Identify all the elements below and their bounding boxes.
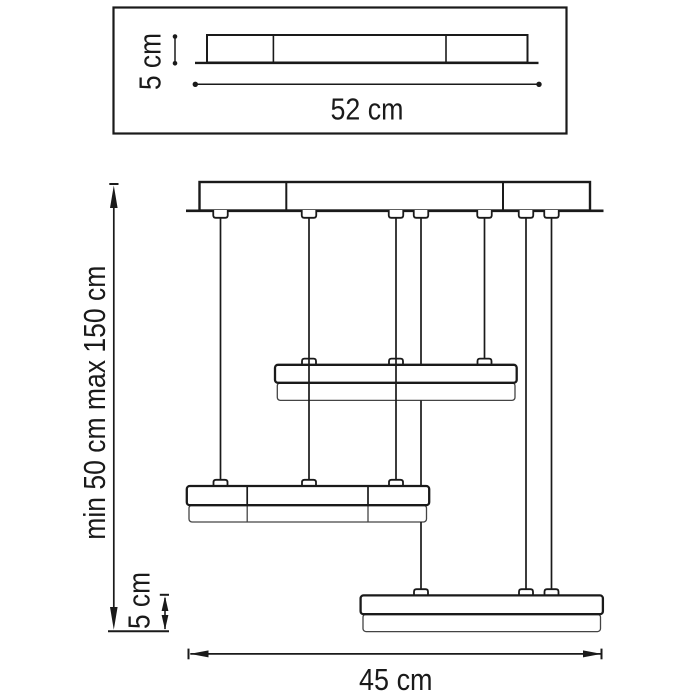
svg-text:5 cm: 5 cm [123, 572, 157, 629]
svg-text:52 cm: 52 cm [331, 92, 404, 126]
svg-text:5 cm: 5 cm [134, 33, 168, 90]
svg-text:min 50 cm max 150 cm: min 50 cm max 150 cm [78, 266, 112, 540]
svg-text:45 cm: 45 cm [359, 663, 433, 697]
